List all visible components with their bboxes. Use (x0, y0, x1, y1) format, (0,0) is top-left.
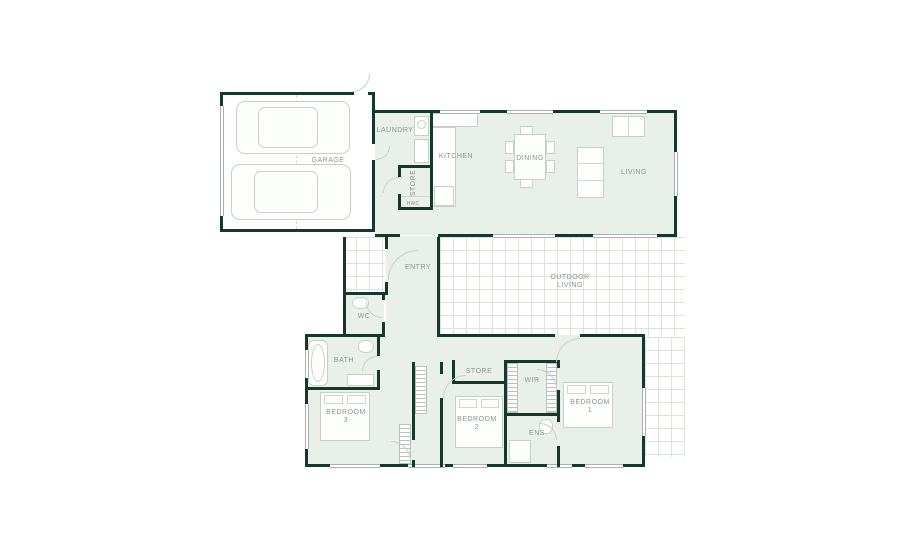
dining-chair (520, 126, 533, 135)
wall-segment (343, 295, 346, 334)
wall-segment (305, 387, 380, 390)
window (305, 350, 309, 378)
wall-segment (438, 234, 493, 237)
sofa-three-seat-divider (578, 180, 603, 181)
fridge (434, 186, 454, 206)
sliding-door (674, 152, 678, 196)
wall-segment (377, 370, 380, 390)
ens-shower (509, 440, 531, 463)
wall-segment (555, 234, 593, 237)
bath-toilet (358, 340, 374, 353)
wall-segment (647, 110, 677, 113)
bed-bedroom2-pillow (481, 399, 499, 408)
outdoor-living-line2: LIVING (557, 282, 583, 289)
wall-segment (437, 334, 555, 337)
wall-segment (305, 464, 330, 467)
bed-bedroom3-pillow (347, 395, 366, 404)
wall-segment (674, 110, 677, 152)
store-hall-label: STORE (410, 170, 418, 197)
wall-segment (385, 237, 388, 249)
wall-segment (504, 413, 560, 416)
wall-segment (220, 92, 354, 95)
porch-tiles (343, 237, 385, 295)
bed-bedroom3-pillow (324, 395, 343, 404)
wall-segment (504, 360, 560, 363)
bedroom3-wardrobe (415, 366, 427, 414)
window (507, 110, 553, 114)
bedroom2-label: BEDROOM 2 (457, 416, 497, 432)
stacker-door (593, 234, 657, 238)
bedroom2-line2: 2 (475, 424, 479, 431)
outdoor-living-line1: OUTDOOR (550, 274, 589, 281)
wall-segment (642, 334, 645, 388)
wall-segment (445, 464, 453, 467)
wall-segment (557, 416, 560, 422)
window (585, 464, 623, 468)
wall-segment (398, 165, 401, 177)
wall-segment (642, 436, 645, 467)
ens-label: ENS (529, 430, 545, 438)
wall-segment (412, 362, 415, 440)
wall-segment (220, 92, 223, 106)
wall-segment (557, 446, 560, 467)
bath-vanity (347, 374, 374, 386)
wall-segment (553, 110, 600, 113)
bedroom1-label: BEDROOM 1 (570, 399, 610, 415)
wall-segment (440, 362, 443, 374)
bedroom3-line1: BEDROOM (326, 409, 366, 416)
bathtub-inner (311, 344, 325, 382)
window (600, 110, 647, 114)
kitchen-bench-top (432, 113, 478, 127)
wall-segment (430, 112, 433, 210)
bedroom1-line2: 1 (588, 407, 592, 414)
wall-segment (440, 398, 443, 467)
entry-label: ENTRY (405, 264, 431, 272)
car-2-cabin (254, 171, 318, 213)
wall-segment (487, 464, 547, 467)
bath-label: BATH (334, 357, 354, 365)
wall-segment (480, 110, 507, 113)
window (440, 110, 480, 114)
bedroom2-line1: BEDROOM (457, 416, 497, 423)
bedroom1-line1: BEDROOM (570, 399, 610, 406)
sofa-three-seat-divider (578, 163, 603, 164)
dining-label: DINING (516, 155, 544, 163)
washing-machine-drum (417, 120, 426, 129)
wall-segment (382, 292, 385, 300)
bedroom3-line2: 3 (344, 417, 348, 424)
floor-plan: GARAGE LAUNDRY STORE HWC KITCHEN DINING … (0, 0, 900, 540)
wall-segment (372, 92, 375, 144)
wall-segment (343, 292, 385, 295)
window (330, 464, 380, 468)
laundry-label: LAUNDRY (377, 127, 414, 135)
window (305, 404, 309, 449)
bedroom3-label: BEDROOM 3 (326, 409, 366, 425)
bed-bedroom2-pillow (459, 399, 477, 408)
wall-segment (572, 464, 585, 467)
wall-segment (305, 378, 308, 404)
dining-chair (546, 160, 555, 173)
dining-chair (505, 141, 514, 154)
wall-segment (504, 384, 507, 467)
wir-robe-left (507, 363, 518, 413)
dining-chair (520, 179, 533, 188)
wall-segment (305, 334, 385, 337)
wall-segment (657, 234, 677, 237)
wall-segment (220, 229, 375, 232)
kitchen-label: KITCHEN (439, 153, 473, 161)
window (453, 464, 487, 468)
wall-segment (398, 165, 431, 168)
wall-segment (580, 334, 645, 337)
wall-segment (377, 334, 380, 356)
hwc-label: HWC (407, 200, 420, 208)
wall-segment (380, 464, 408, 467)
sofa-two-seat-divider (628, 117, 629, 136)
sofa-three-seat (577, 147, 604, 198)
stacker-door (493, 234, 555, 238)
outdoor-living-label: OUTDOOR LIVING (550, 274, 589, 290)
outdoor-side-tiles (645, 337, 685, 457)
wall-segment (412, 460, 415, 467)
bed-bedroom1-pillow (567, 385, 586, 394)
garage-door (220, 106, 224, 216)
wall-segment (305, 334, 308, 350)
laundry-tub (414, 139, 429, 163)
wc-label: WC (358, 313, 371, 321)
store-bedroom-label: STORE (466, 368, 493, 376)
car-1-cabin (258, 107, 318, 148)
wall-segment (343, 237, 346, 292)
window (642, 388, 646, 436)
living-label: LIVING (621, 169, 647, 177)
door-swing (352, 74, 370, 92)
wir-label: WIR (524, 377, 539, 385)
wall-segment (437, 237, 440, 337)
wall-segment (674, 196, 677, 237)
bed-bedroom1-pillow (590, 385, 609, 394)
garage-label: GARAGE (312, 157, 345, 165)
wall-segment (385, 282, 388, 295)
dining-chair (546, 141, 555, 154)
dining-chair (505, 160, 514, 173)
wall-segment (372, 160, 375, 232)
